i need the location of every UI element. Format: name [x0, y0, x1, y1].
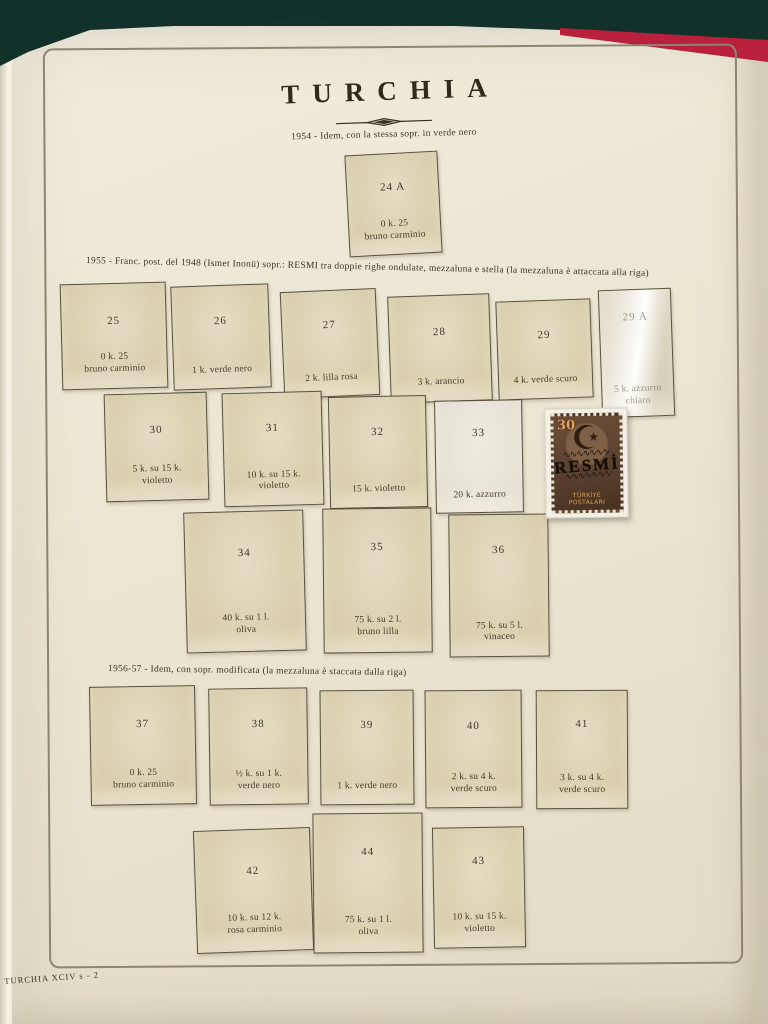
stamp-description: 75 k. su 5 l.vinaceo	[476, 620, 523, 644]
catalog-number: 29 A	[623, 311, 648, 324]
catalog-number: 34	[238, 547, 251, 559]
section-caption-1955: 1955 - Franc. post. del 1948 (Ismet Inon…	[86, 256, 649, 279]
catalog-number: 39	[360, 719, 373, 731]
stamp-description: 2 k. su 4 k.verde scuro	[451, 772, 497, 796]
stamp-description: 75 k. su 1 l.oliva	[345, 915, 392, 939]
stamp-description: ½ k. su 1 k.verde nero	[236, 768, 283, 792]
catalog-number: 36	[492, 544, 505, 556]
stamp-placeholder-35: 3575 k. su 2 l.bruno lilla	[322, 507, 433, 653]
stamp-description: 10 k. su 12 k.rosa carminio	[227, 912, 282, 938]
stamp-description: 10 k. su 15 k.violetto	[247, 469, 302, 494]
catalog-number: 38	[252, 718, 265, 730]
stamp-description: 40 k. su 1 l.oliva	[222, 612, 270, 637]
stamp-placeholder-38: 38½ k. su 1 k.verde nero	[208, 687, 309, 805]
catalog-number: 32	[371, 426, 384, 438]
stamp-placeholder-32: 3215 k. violetto	[328, 395, 428, 509]
stamp-placeholder-36: 3675 k. su 5 l.vinaceo	[448, 513, 549, 657]
stamp-placeholder-24A: 24 A0 k. 25bruno carminio	[344, 151, 442, 258]
catalog-number: 24 A	[380, 181, 406, 194]
photo-of-album-page: TURCHIA 1954 - Idem, con la stessa sopr.…	[0, 0, 768, 1024]
stamp-placeholder-44: 4475 k. su 1 l.oliva	[312, 813, 423, 954]
stamp-description: 1 k. verde nero	[192, 364, 252, 378]
stamp-country-text: TÜRKİYE POSTALARI	[554, 492, 620, 507]
stamp-description: 5 k. su 15 k.violetto	[132, 463, 182, 488]
section-caption-1956: 1956-57 - Idem, con sopr. modificata (la…	[108, 664, 407, 678]
page-footer-catalog-ref: TURCHIA XCIV s - 2	[4, 969, 99, 986]
stamp-description: 5 k. azzurro chiaro	[602, 382, 674, 408]
catalog-number: 40	[467, 719, 480, 731]
stamp-placeholder-42: 4210 k. su 12 k.rosa carminio	[193, 827, 314, 954]
stamp-description: 0 k. 25bruno carminio	[113, 767, 175, 792]
stamp-description: 75 k. su 2 l.bruno lilla	[354, 615, 401, 639]
stamp-description: 2 k. lilla rosa	[305, 372, 358, 386]
stamp-description: 20 k. azzurro	[453, 489, 506, 502]
stamp-placeholder-31: 3110 k. su 15 k.violetto	[222, 391, 325, 508]
catalog-number: 27	[322, 319, 336, 332]
stamp-placeholder-25: 250 k. 25bruno carminio	[60, 282, 169, 391]
catalog-number: 33	[472, 427, 485, 439]
stamp-placeholder-34: 3440 k. su 1 l.oliva	[183, 509, 307, 653]
stamp-placeholder-27: 272 k. lilla rosa	[280, 288, 381, 399]
catalog-number: 41	[575, 718, 588, 730]
stamp-description: 3 k. arancio	[418, 376, 465, 390]
catalog-number: 43	[472, 855, 485, 867]
stamp-description: 0 k. 25bruno carminio	[364, 218, 426, 245]
catalog-number: 29	[537, 329, 550, 341]
stamp-description: 4 k. verde scuro	[513, 374, 577, 388]
catalog-number: 42	[246, 864, 259, 876]
mounted-stamp-resmi: 30 ☪ ∿∿∿∿∿∿∿ RESMİ ∿∿∿∿∿∿∿ TÜRKİYE POSTA…	[544, 407, 629, 518]
stamp-placeholder-26: 261 k. verde nero	[170, 283, 272, 390]
catalog-number: 25	[107, 315, 120, 327]
stamp-placeholder-28: 283 k. arancio	[387, 293, 493, 403]
catalog-number: 37	[136, 718, 149, 730]
stamp-placeholder-37: 370 k. 25bruno carminio	[89, 685, 197, 806]
stamp-placeholder-33: 3320 k. azzurro	[434, 399, 524, 514]
stamp-description: 1 k. verde nero	[337, 781, 397, 793]
stamp-placeholder-41: 413 k. su 4 k.verde scuro	[536, 690, 629, 809]
stamp-placeholder-43: 4310 k. su 15 k.violetto	[432, 826, 526, 949]
stamp-description: 0 k. 25bruno carminio	[84, 351, 146, 376]
catalog-number: 28	[433, 326, 446, 338]
catalog-number: 35	[371, 541, 384, 553]
catalog-number: 44	[361, 846, 374, 858]
catalog-number: 31	[266, 422, 279, 434]
stamp-description: 3 k. su 4 k.verde scuro	[559, 773, 605, 797]
stamp-placeholder-29: 294 k. verde scuro	[495, 298, 593, 400]
stamp-description: 15 k. violetto	[352, 483, 405, 496]
stamp-placeholder-40: 402 k. su 4 k.verde scuro	[424, 690, 522, 809]
resmi-overprint: ∿∿∿∿∿∿∿ RESMİ ∿∿∿∿∿∿∿	[550, 449, 623, 482]
stamp-placeholder-30: 305 k. su 15 k.violetto	[104, 392, 210, 503]
stamp-description: 10 k. su 15 k.violetto	[452, 912, 506, 937]
stamp-design: 30 ☪ ∿∿∿∿∿∿∿ RESMİ ∿∿∿∿∿∿∿ TÜRKİYE POSTA…	[550, 413, 623, 514]
stamp-placeholder-29A: 29 A5 k. azzurro chiaro	[598, 288, 675, 418]
catalog-number: 26	[214, 315, 227, 327]
catalog-number: 30	[149, 424, 162, 436]
page-content: TURCHIA 1954 - Idem, con la stessa sopr.…	[0, 0, 768, 1024]
stamp-placeholder-39: 391 k. verde nero	[320, 690, 415, 806]
